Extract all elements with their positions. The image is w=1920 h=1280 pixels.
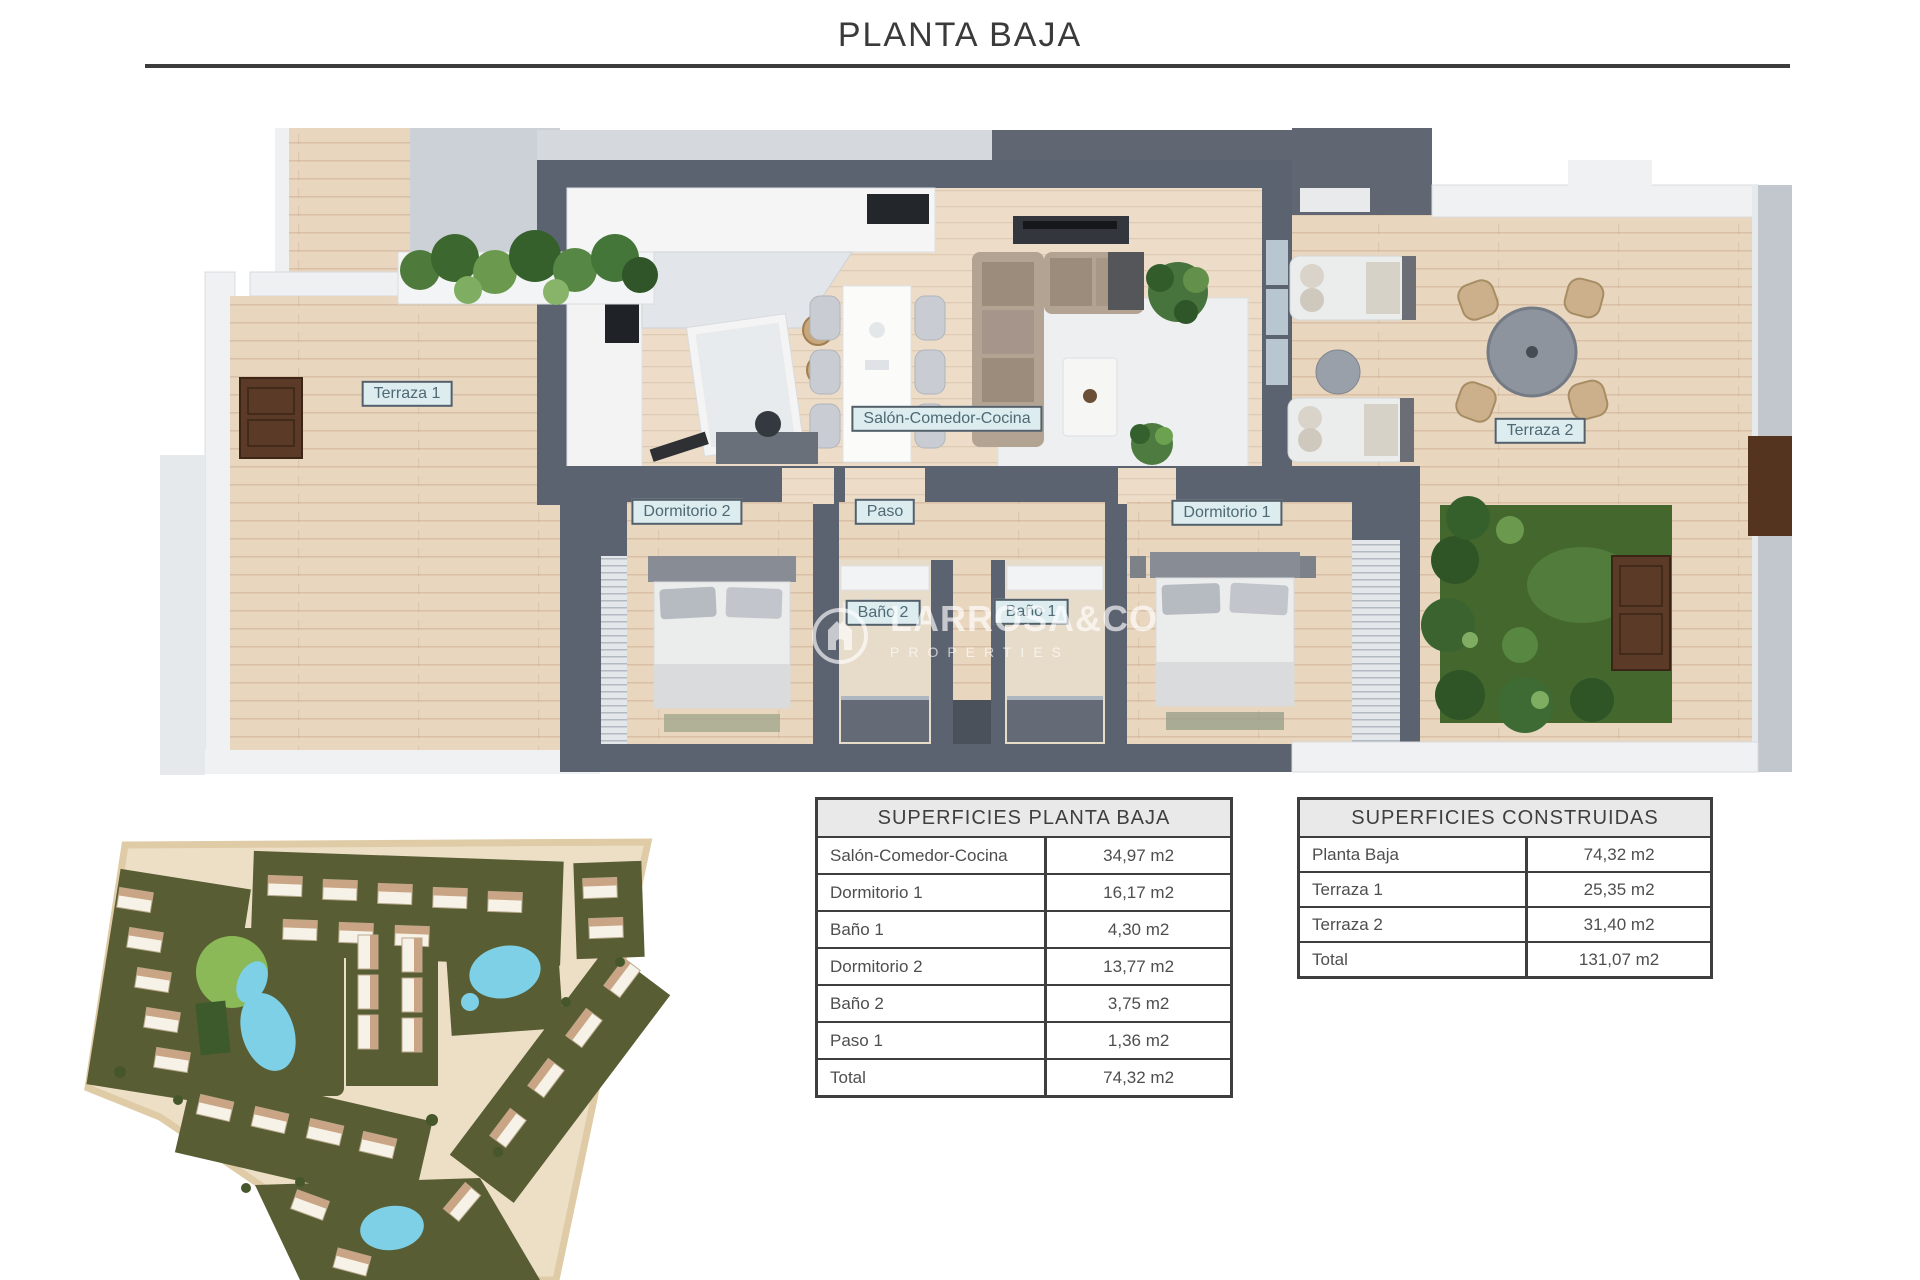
table-row: Total 131,07 m2 [1300,943,1710,976]
room-label-dormitorio-1: Dormitorio 1 [1171,500,1282,526]
room-label-paso: Paso [855,499,915,525]
table-superficies-construidas: SUPERFICIES CONSTRUIDAS Planta Baja 74,3… [1297,797,1713,979]
floor-plan-page: PLANTA BAJA [0,0,1920,1280]
table-row: Dormitorio 2 13,77 m2 [818,949,1230,986]
dining-furniture [810,286,945,462]
table-header: SUPERFICIES PLANTA BAJA [818,800,1230,838]
terraza-1-area [160,128,600,775]
room-label-salon: Salón-Comedor-Cocina [851,406,1042,432]
room-label-bano-2: Baño 2 [846,600,921,626]
bed-dormitorio-1 [1130,552,1316,730]
table-superficies-planta-baja: SUPERFICIES PLANTA BAJA Salón-Comedor-Co… [815,797,1233,1098]
room-label-dormitorio-2: Dormitorio 2 [631,499,742,525]
table-row: Dormitorio 1 16,17 m2 [818,875,1230,912]
table-row: Terraza 2 31,40 m2 [1300,908,1710,943]
table-row: Baño 2 3,75 m2 [818,986,1230,1023]
table-row: Planta Baja 74,32 m2 [1300,838,1710,873]
table-row: Salón-Comedor-Cocina 34,97 m2 [818,838,1230,875]
bed-dormitorio-2 [648,556,796,732]
room-label-terraza-2: Terraza 2 [1495,418,1586,444]
room-label-bano-1: Baño 1 [994,599,1069,625]
table-row: Total 74,32 m2 [818,1060,1230,1095]
site-map [86,842,670,1280]
room-label-terraza-1: Terraza 1 [362,381,453,407]
table-row: Baño 1 4,30 m2 [818,912,1230,949]
table-row: Terraza 1 25,35 m2 [1300,873,1710,908]
table-header: SUPERFICIES CONSTRUIDAS [1300,800,1710,838]
table-row: Paso 1 1,36 m2 [818,1023,1230,1060]
terraza-1-door-icon [240,378,302,458]
